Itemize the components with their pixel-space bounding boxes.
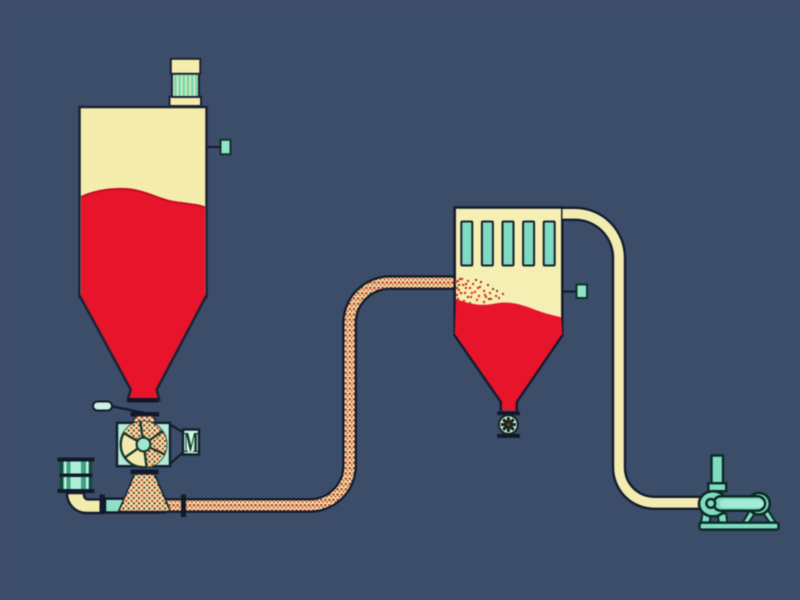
svg-text:M: M xyxy=(184,428,199,459)
